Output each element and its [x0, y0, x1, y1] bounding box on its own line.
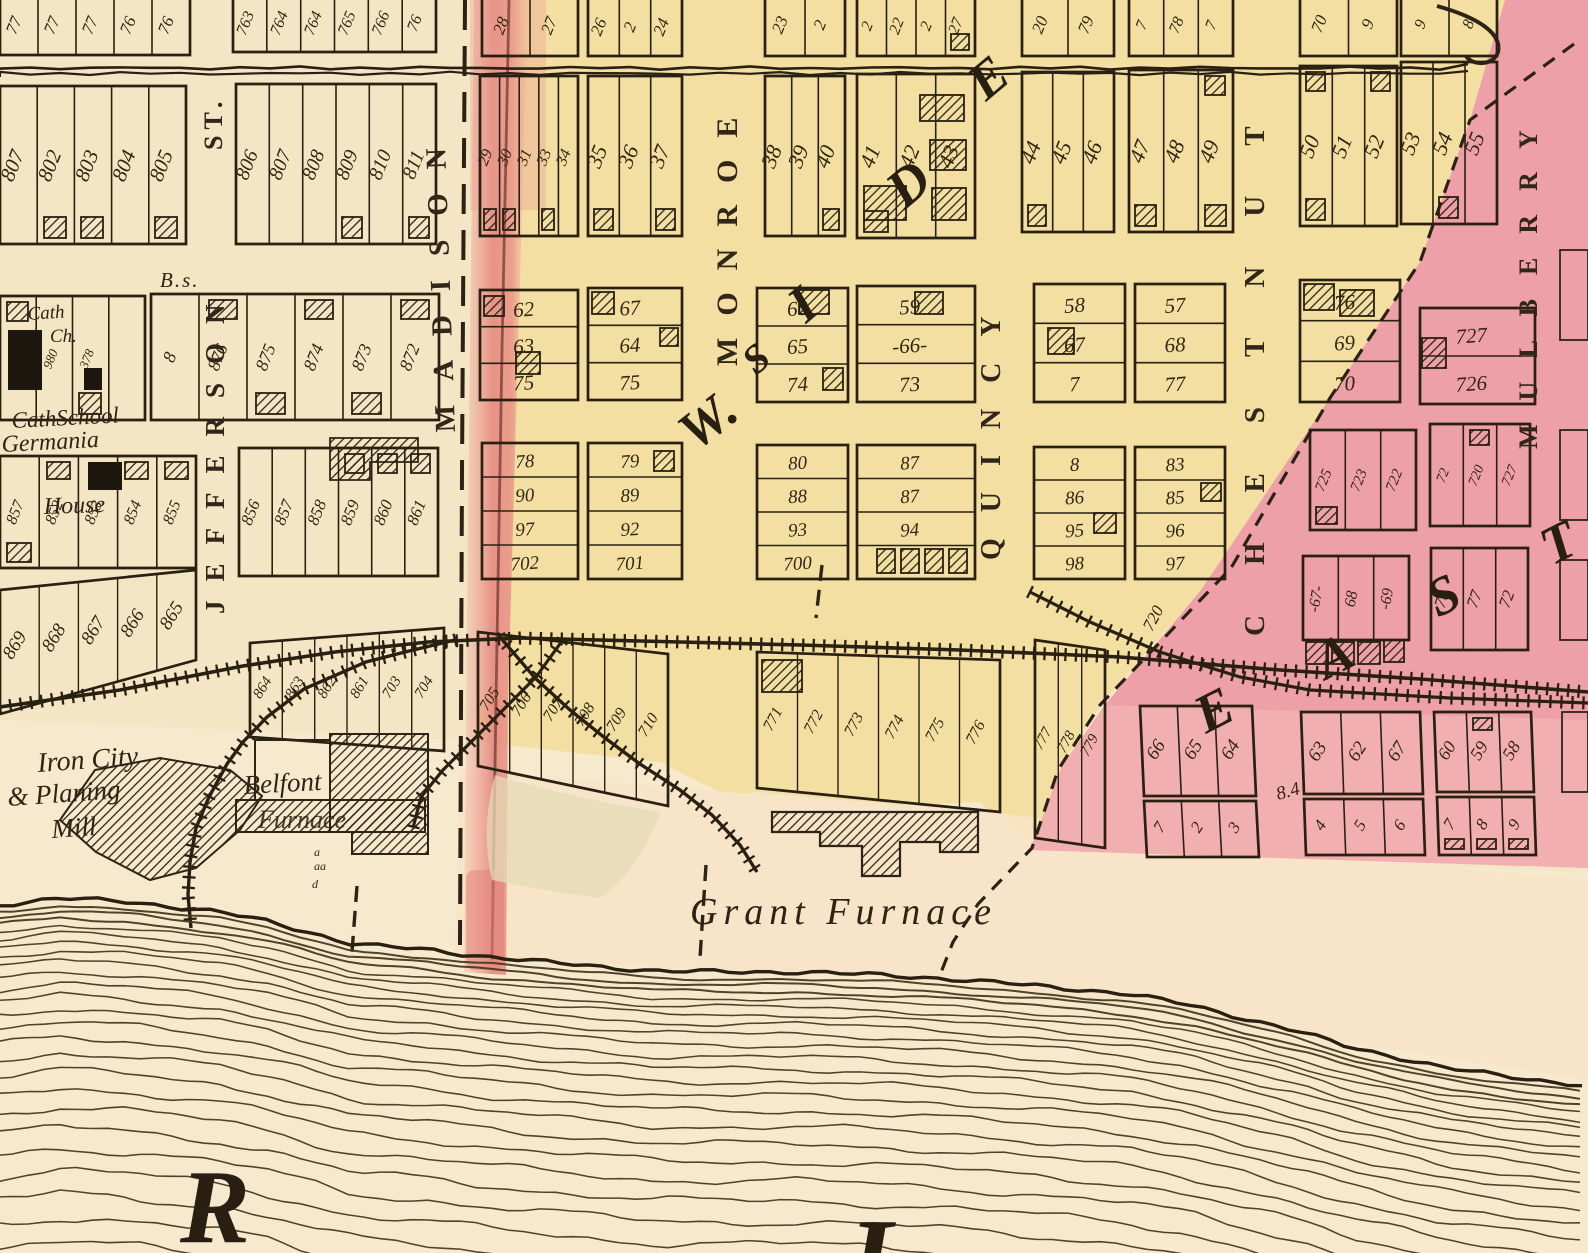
svg-text:77: 77: [1164, 371, 1188, 397]
svg-text:57: 57: [1164, 293, 1188, 319]
svg-text:69: 69: [1333, 330, 1356, 355]
svg-text:Cath: Cath: [27, 301, 65, 325]
svg-text:86: 86: [1064, 487, 1085, 509]
svg-text:93: 93: [787, 519, 807, 541]
svg-text:94: 94: [900, 519, 921, 541]
svg-text:75: 75: [619, 370, 642, 395]
svg-text:a: a: [314, 845, 320, 859]
svg-text:MONROE: MONROE: [711, 96, 744, 366]
svg-text:MULBERRY: MULBERRY: [1514, 106, 1543, 449]
svg-text:65: 65: [786, 334, 809, 359]
svg-text:74: 74: [786, 372, 809, 397]
svg-text:Ch.: Ch.: [50, 326, 77, 347]
svg-text:85: 85: [1165, 487, 1185, 509]
svg-text:68: 68: [1164, 332, 1187, 357]
svg-text:726: 726: [1455, 371, 1489, 397]
svg-text:ST.: ST.: [199, 96, 228, 150]
svg-text:78: 78: [515, 451, 536, 473]
svg-text:QUINCY: QUINCY: [976, 290, 1007, 560]
svg-text:Germania: Germania: [1, 427, 100, 458]
svg-text:67: 67: [619, 295, 643, 321]
svg-text:79: 79: [620, 451, 641, 473]
svg-text:Furnace: Furnace: [257, 805, 346, 834]
svg-text:CHESTNUT: CHESTNUT: [1239, 76, 1271, 636]
svg-text:727: 727: [1455, 322, 1490, 348]
svg-text:702: 702: [510, 553, 540, 576]
svg-text:80: 80: [787, 452, 808, 474]
svg-text:62: 62: [512, 297, 535, 322]
svg-text:JEFFERSON: JEFFERSON: [200, 285, 230, 614]
svg-text:89: 89: [620, 485, 641, 507]
svg-text:68: 68: [1342, 590, 1362, 609]
svg-text:Belfont: Belfont: [243, 766, 324, 800]
svg-text:B.s.: B.s.: [160, 268, 200, 292]
svg-text:98: 98: [1064, 553, 1085, 575]
svg-text:96: 96: [1165, 520, 1186, 542]
svg-text:64: 64: [619, 332, 642, 357]
svg-text:73: 73: [898, 372, 921, 397]
svg-text:92: 92: [620, 519, 641, 541]
svg-text:Mill: Mill: [49, 811, 97, 844]
svg-text:701: 701: [615, 553, 645, 576]
svg-text:88: 88: [787, 486, 808, 508]
svg-text:Grant Furnace: Grant Furnace: [690, 891, 997, 933]
svg-text:87: 87: [900, 452, 922, 474]
svg-text:R: R: [179, 1148, 252, 1253]
svg-text:d: d: [312, 877, 319, 891]
svg-text:aa: aa: [314, 859, 326, 873]
svg-text:House: House: [42, 492, 106, 520]
svg-text:87: 87: [900, 486, 922, 508]
svg-text:I: I: [846, 1196, 897, 1253]
svg-text:90: 90: [515, 485, 536, 507]
svg-text:95: 95: [1064, 520, 1084, 542]
svg-text:700: 700: [783, 553, 813, 576]
svg-text:70: 70: [1333, 371, 1356, 396]
svg-text:97: 97: [515, 519, 537, 541]
svg-text:97: 97: [1165, 553, 1187, 575]
svg-text:83: 83: [1165, 454, 1185, 476]
svg-text:58: 58: [1063, 293, 1086, 318]
svg-text:-66-: -66-: [891, 332, 928, 358]
